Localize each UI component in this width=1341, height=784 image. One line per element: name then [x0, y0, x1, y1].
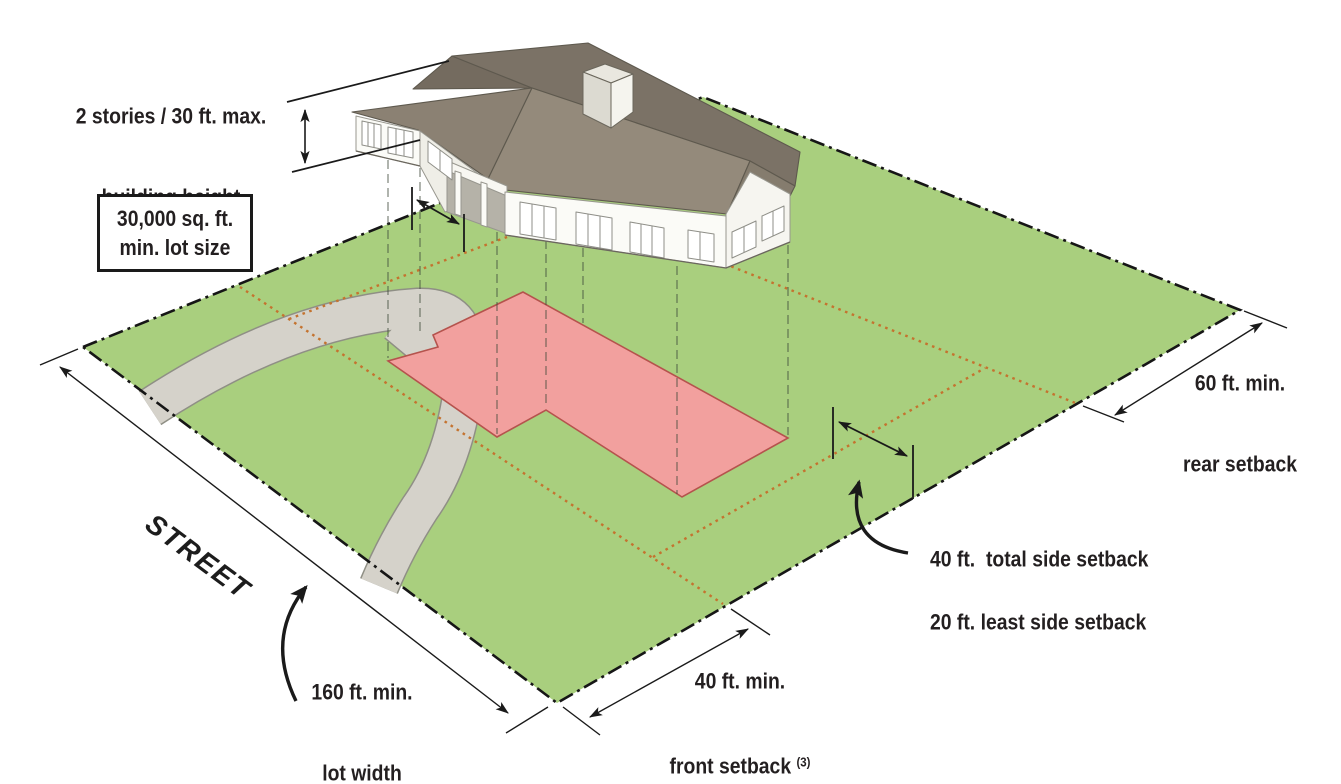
zoning-setback-diagram: 2 stories / 30 ft. max. building height … [0, 0, 1341, 784]
building-height-line1: 2 stories / 30 ft. max. [76, 103, 266, 130]
lot-width-label: 160 ft. min. lot width [311, 625, 412, 784]
front-setback-footnote: (3) [796, 755, 810, 770]
lot-size-box: 30,000 sq. ft. min. lot size [97, 194, 253, 272]
lot-width-extension-tick [40, 349, 78, 365]
least-side-setback-label: 20 ft. least side setback [930, 609, 1146, 636]
lot-width-line1: 160 ft. min. [311, 679, 412, 706]
lot-width-extension-tick [506, 707, 548, 733]
lot-width-callout-arrow [283, 587, 306, 701]
rear-setback-line1: 60 ft. min. [1183, 370, 1297, 397]
lot-size-line2: min. lot size [120, 233, 231, 262]
rear-setback-line2: rear setback [1183, 451, 1297, 478]
lot-size-line1: 30,000 sq. ft. [117, 204, 233, 233]
front-setback-line1: 40 ft. min. [670, 668, 811, 695]
front-setback-extension-tick [563, 707, 600, 735]
front-setback-text: front setback [670, 754, 792, 779]
total-side-setback-label: 40 ft. total side setback [930, 546, 1148, 573]
lot-width-line2: lot width [311, 760, 412, 784]
front-setback-label: 40 ft. min. front setback (3) [670, 614, 811, 784]
rear-setback-label: 60 ft. min. rear setback [1183, 316, 1297, 505]
front-setback-line2: front setback (3) [670, 749, 811, 780]
